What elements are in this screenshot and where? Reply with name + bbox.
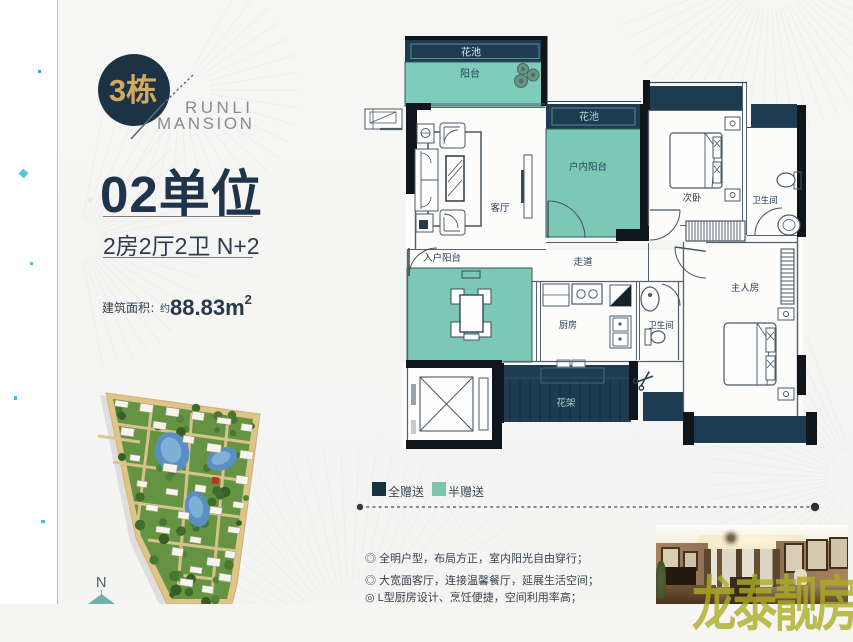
svg-text:户内阳台: 户内阳台 <box>569 161 607 173</box>
svg-text:卫生间: 卫生间 <box>648 320 674 330</box>
svg-text:次卧: 次卧 <box>682 192 702 204</box>
svg-text:N: N <box>96 575 106 591</box>
svg-text:花池: 花池 <box>579 110 599 123</box>
svg-text:主人房: 主人房 <box>731 282 760 294</box>
svg-text:花架: 花架 <box>556 397 576 409</box>
svg-text:卫生间: 卫生间 <box>752 195 778 205</box>
svg-text:花池: 花池 <box>461 46 481 59</box>
svg-text:阳台: 阳台 <box>460 67 480 80</box>
svg-text:入户阳台: 入户阳台 <box>423 252 461 264</box>
svg-text:厨房: 厨房 <box>559 319 577 330</box>
svg-text:客厅: 客厅 <box>490 202 510 214</box>
svg-text:走道: 走道 <box>573 256 593 268</box>
